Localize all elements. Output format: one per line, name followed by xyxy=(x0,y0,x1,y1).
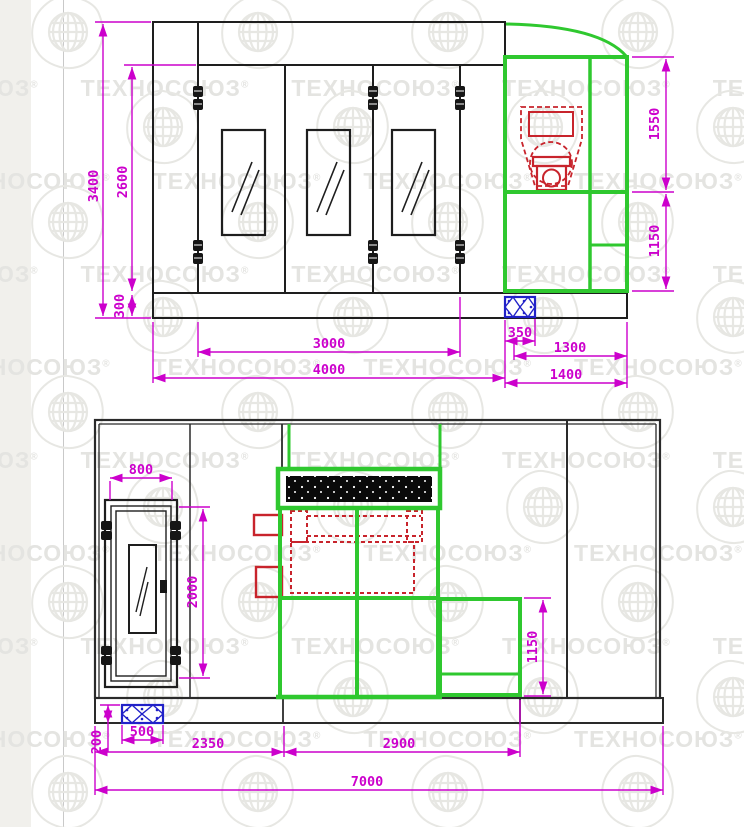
window-glass-hatch xyxy=(232,162,429,215)
foundation-pit-hatch xyxy=(505,297,535,317)
blueprint-page: ТЕХНОСОЮЗ®ТЕХНОСОЮЗ®ТЕХНОСОЮЗ®ТЕХНОСОЮЗ®… xyxy=(0,0,744,827)
dim-label-side-pit-width: 500 xyxy=(130,724,154,740)
dim-label-front-annex-upper-height: 1550 xyxy=(647,108,663,141)
front-dimension-annotations xyxy=(95,22,674,388)
dim-label-side-door-width: 800 xyxy=(129,462,153,478)
door-handle xyxy=(160,580,167,593)
side-elevation-view: 800 2000 1150 500 200 2350 2900 7000 xyxy=(89,420,663,795)
dim-label-side-service-bay-length: 2900 xyxy=(383,736,416,752)
door-window xyxy=(129,545,156,633)
foundation-pit-hatch-side xyxy=(122,705,163,723)
dim-label-front-annex-width: 1400 xyxy=(550,367,583,383)
fan-unit xyxy=(521,107,582,190)
dim-label-front-base-height: 300 xyxy=(112,294,128,318)
personnel-door xyxy=(101,500,181,687)
dim-label-front-annex-lower-height: 1150 xyxy=(647,225,663,258)
dim-label-front-door-opening-height: 2600 xyxy=(115,166,131,199)
dim-label-front-door-opening-width: 3000 xyxy=(313,336,346,352)
dim-label-side-entry-bay-length: 2350 xyxy=(192,736,225,752)
service-box-frame xyxy=(440,599,520,695)
front-elevation-view: 3400 2600 300 3000 4000 350 1300 1400 15… xyxy=(86,22,674,388)
dim-label-side-door-height: 2000 xyxy=(185,576,201,609)
door-windows xyxy=(222,130,435,235)
dim-label-side-overall-length: 7000 xyxy=(351,774,384,790)
dim-label-front-annex-clear-width: 1300 xyxy=(554,340,587,356)
dim-label-side-pit-depth: 200 xyxy=(89,730,105,754)
dim-label-front-overall-width: 4000 xyxy=(313,362,346,378)
burner-units xyxy=(254,515,282,597)
dim-label-front-total-height: 3400 xyxy=(86,170,102,203)
dim-label-front-pit-width: 350 xyxy=(508,325,532,341)
technical-drawing: 3400 2600 300 3000 4000 350 1300 1400 15… xyxy=(0,0,744,827)
air-handling-frame xyxy=(276,424,520,697)
filter-panel xyxy=(286,476,432,502)
door-hinges xyxy=(193,86,465,264)
dim-label-side-service-height: 1150 xyxy=(525,631,541,664)
